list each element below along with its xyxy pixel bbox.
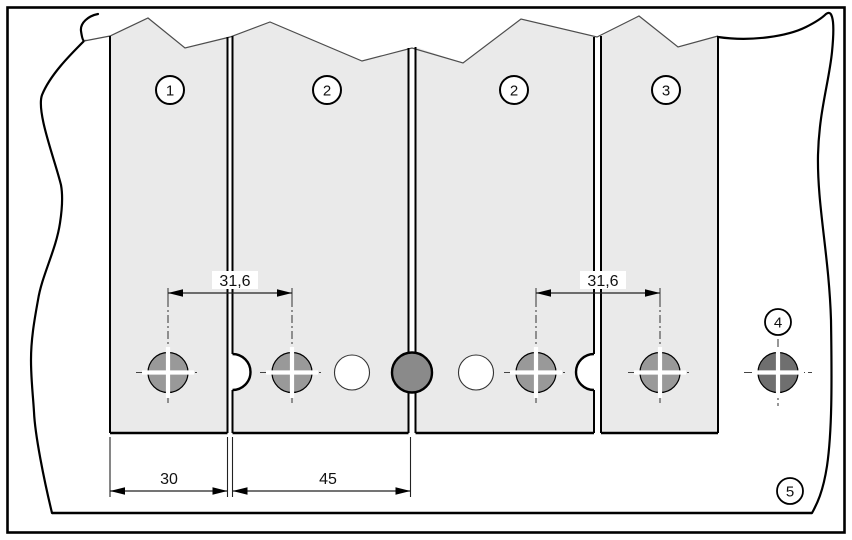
technical-drawing-page: 31,6 31,6 30 45 [0, 0, 852, 540]
callout-5-label: 5 [786, 484, 794, 501]
dimension-label-panel2-width: 45 [319, 471, 337, 488]
callout-2: 2 [313, 76, 341, 104]
callout-4: 4 [765, 309, 791, 335]
callout-3-label: 3 [662, 83, 670, 100]
joint-hole [392, 353, 432, 393]
dimension-label-panel1-width: 30 [160, 471, 178, 488]
clearance-hole-right [459, 355, 494, 390]
clearance-hole-left [335, 355, 370, 390]
callout-1-label: 1 [166, 83, 174, 100]
callout-1: 1 [156, 76, 184, 104]
callout-2b-label: 2 [510, 83, 518, 100]
callout-5: 5 [777, 478, 803, 504]
dimension-label-pitch-left: 31,6 [219, 273, 250, 290]
callout-4-label: 4 [774, 315, 782, 332]
callout-3: 3 [652, 76, 680, 104]
mounting-diagram: 31,6 31,6 30 45 [0, 0, 852, 540]
callout-2-label: 2 [323, 83, 331, 100]
dimension-label-pitch-right: 31,6 [587, 273, 618, 290]
callout-2b: 2 [500, 76, 528, 104]
